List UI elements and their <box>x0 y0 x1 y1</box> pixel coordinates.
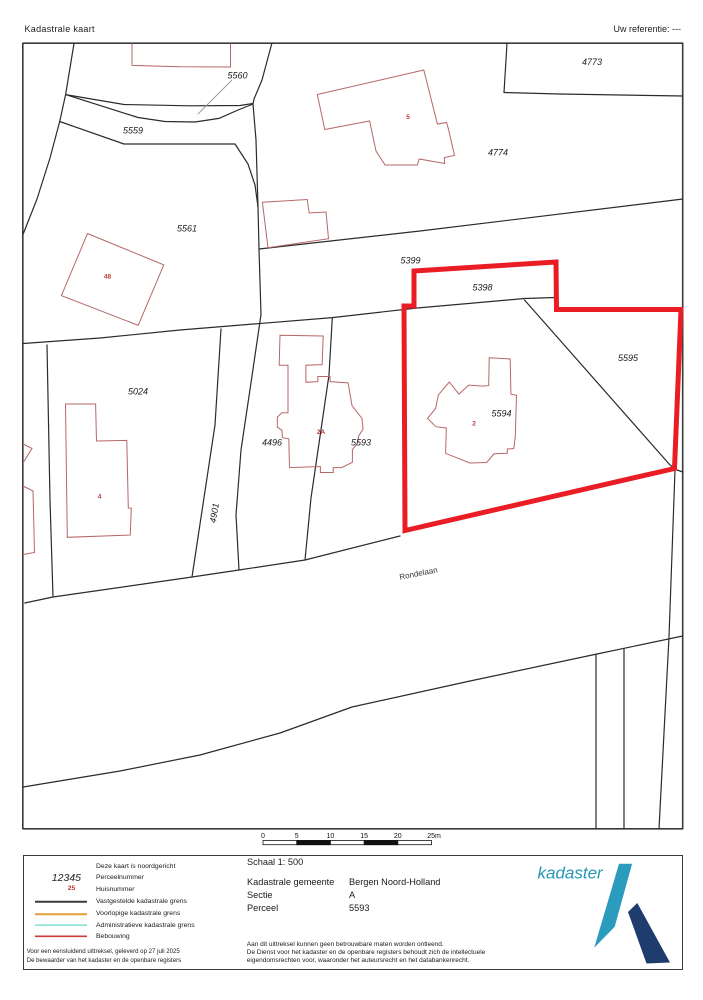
svg-text:kadaster: kadaster <box>538 863 605 882</box>
